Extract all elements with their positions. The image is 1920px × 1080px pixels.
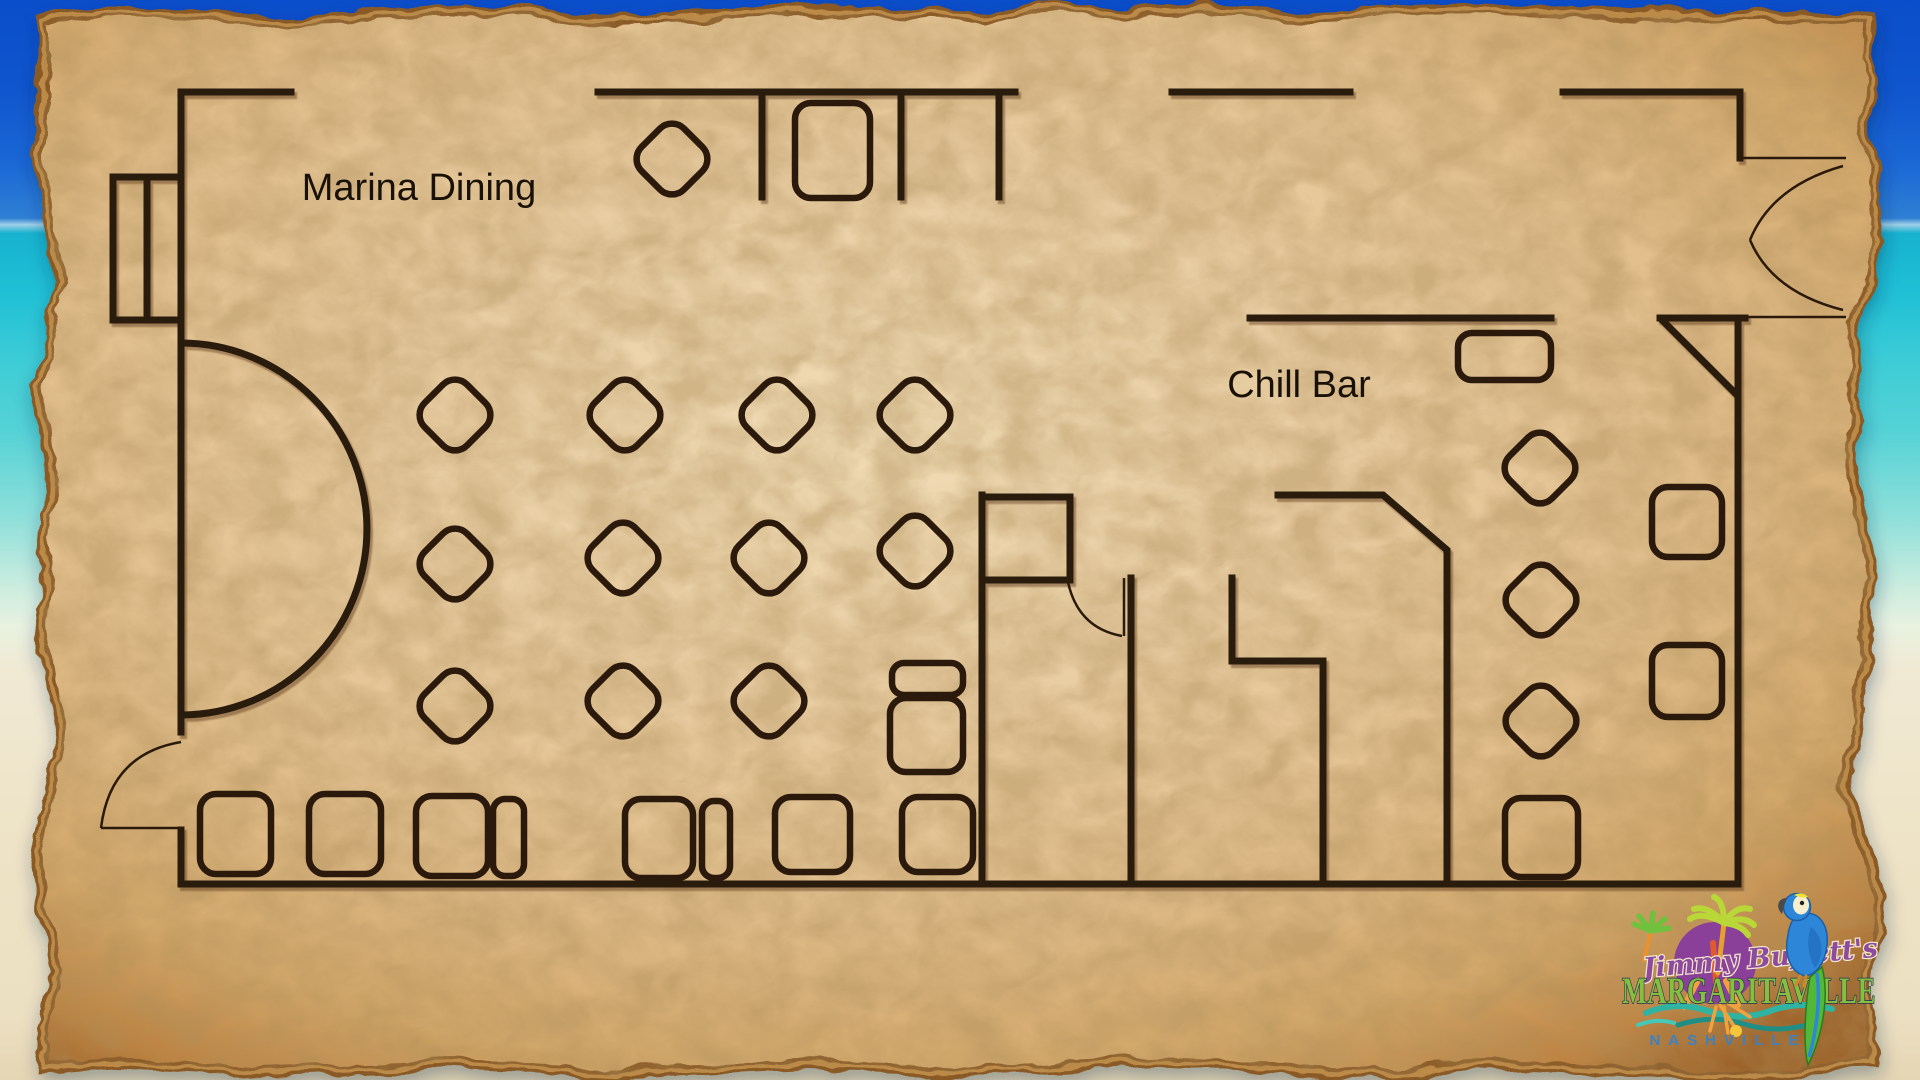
chill-bar-label: Chill Bar [1227, 364, 1371, 406]
marina-dining-label: Marina Dining [302, 167, 536, 209]
parchment-mottle-texture [0, 0, 1920, 1080]
logo-brand-text: MARGARITAVILLE [1622, 971, 1876, 1012]
logo-city-text: NASHVILLE [1649, 1032, 1806, 1049]
parchment [0, 0, 1920, 1080]
floor-plan-scene: Marina Dining Chill Bar Jimmy Buffett's [0, 0, 1920, 1080]
beach-background: Marina Dining Chill Bar Jimmy Buffett's [0, 0, 1920, 1080]
